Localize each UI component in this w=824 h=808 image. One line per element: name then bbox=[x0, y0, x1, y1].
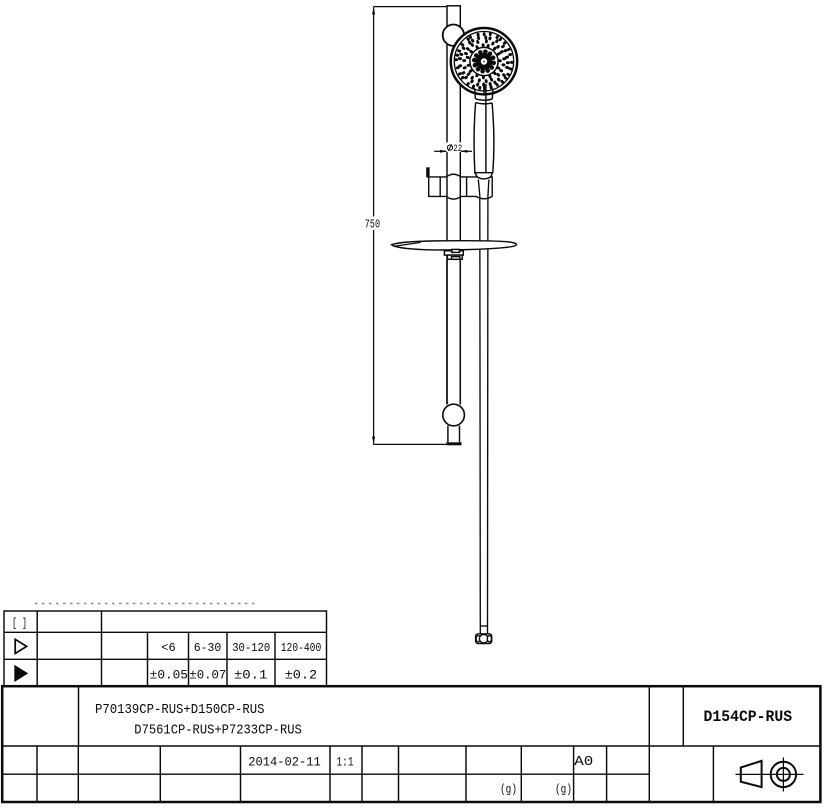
svg-text:<6: <6 bbox=[161, 641, 176, 655]
svg-text:±0.1: ±0.1 bbox=[234, 668, 268, 682]
svg-text:30-120: 30-120 bbox=[232, 641, 270, 655]
svg-text:D154CP-RUS: D154CP-RUS bbox=[704, 708, 793, 726]
svg-text:[ ]: [ ] bbox=[12, 617, 27, 631]
svg-text:750: 750 bbox=[365, 218, 381, 231]
svg-text:2014-02-11: 2014-02-11 bbox=[248, 754, 321, 769]
svg-text:A0: A0 bbox=[574, 755, 593, 770]
svg-text:P70139CP-RUS+D150CP-RUS: P70139CP-RUS+D150CP-RUS bbox=[95, 703, 265, 718]
svg-text:±0.2: ±0.2 bbox=[285, 668, 318, 682]
svg-text:±0.07: ±0.07 bbox=[189, 668, 226, 682]
svg-text:120-400: 120-400 bbox=[281, 641, 322, 655]
svg-text:±0.05: ±0.05 bbox=[150, 668, 188, 682]
svg-text:1:1: 1:1 bbox=[337, 755, 354, 769]
svg-text:(g): (g) bbox=[555, 782, 572, 796]
svg-text:22: 22 bbox=[453, 144, 462, 155]
svg-text:(g): (g) bbox=[500, 782, 517, 796]
svg-text:D7561CP-RUS+P7233CP-RUS: D7561CP-RUS+P7233CP-RUS bbox=[134, 723, 301, 738]
svg-text:6-30: 6-30 bbox=[194, 641, 222, 655]
